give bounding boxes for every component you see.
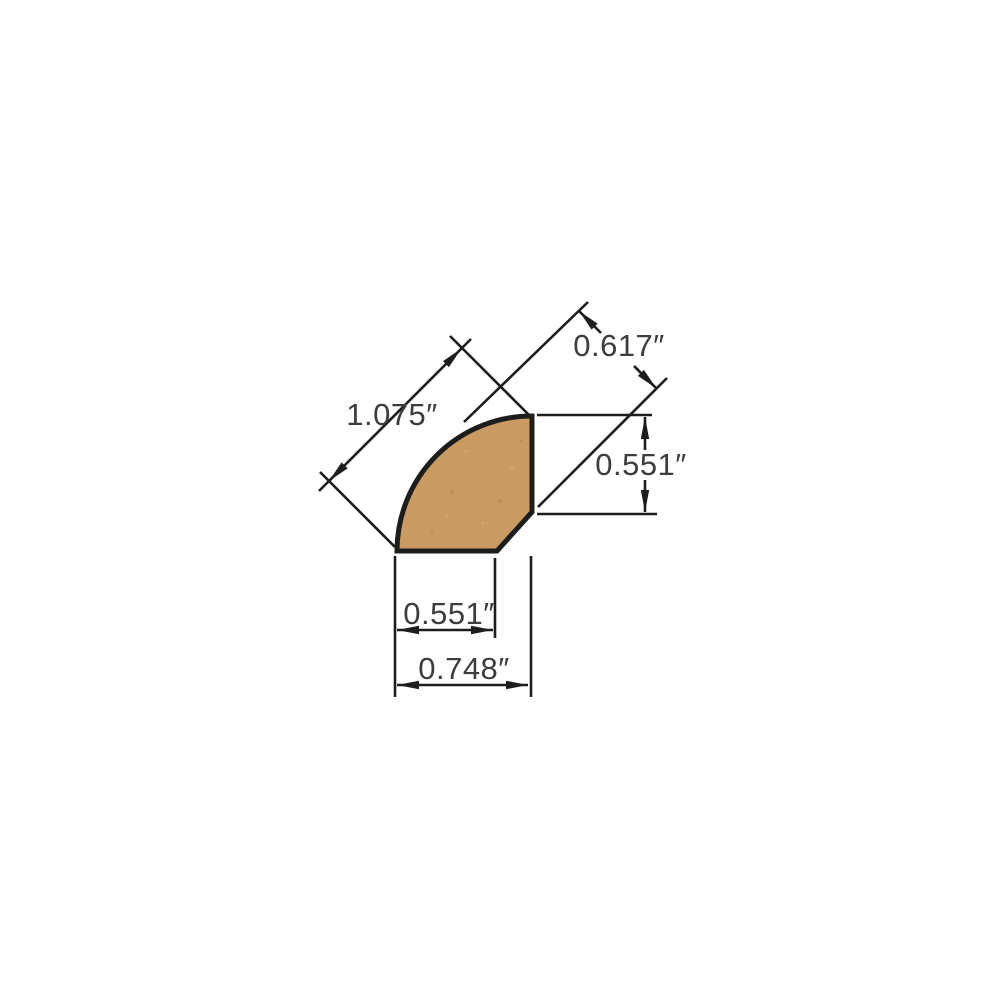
speckle	[520, 440, 523, 443]
profile-outline	[397, 416, 532, 551]
technical-drawing: 1.075″ 0.617″ 0.551″ 0.551″ 0.748″	[0, 0, 1000, 1000]
speckle	[431, 531, 434, 534]
dim-label-bottom-inner: 0.551″	[403, 596, 495, 631]
molding-profile	[397, 416, 532, 551]
extension-line-tangent	[464, 302, 588, 422]
drawing-canvas: 1.075″ 0.617″ 0.551″ 0.551″ 0.748″	[0, 0, 1000, 1000]
speckle	[446, 515, 448, 517]
speckle	[465, 450, 468, 453]
speckle	[482, 522, 485, 525]
arrowhead-left	[397, 681, 419, 689]
speckle	[510, 466, 513, 469]
speckle	[498, 499, 502, 503]
dim-label-right-height: 0.551″	[595, 447, 687, 482]
speckle	[450, 490, 454, 494]
dim-label-curve-face: 1.075″	[346, 397, 438, 432]
extension-line-chamfer	[538, 378, 667, 507]
dim-label-top-diagonal: 0.617″	[573, 328, 665, 363]
extension-line-from-corner	[320, 472, 395, 547]
arrowhead-top	[641, 417, 649, 439]
arrowhead-bottom	[641, 490, 649, 512]
dim-label-bottom-overall: 0.748″	[418, 651, 510, 686]
